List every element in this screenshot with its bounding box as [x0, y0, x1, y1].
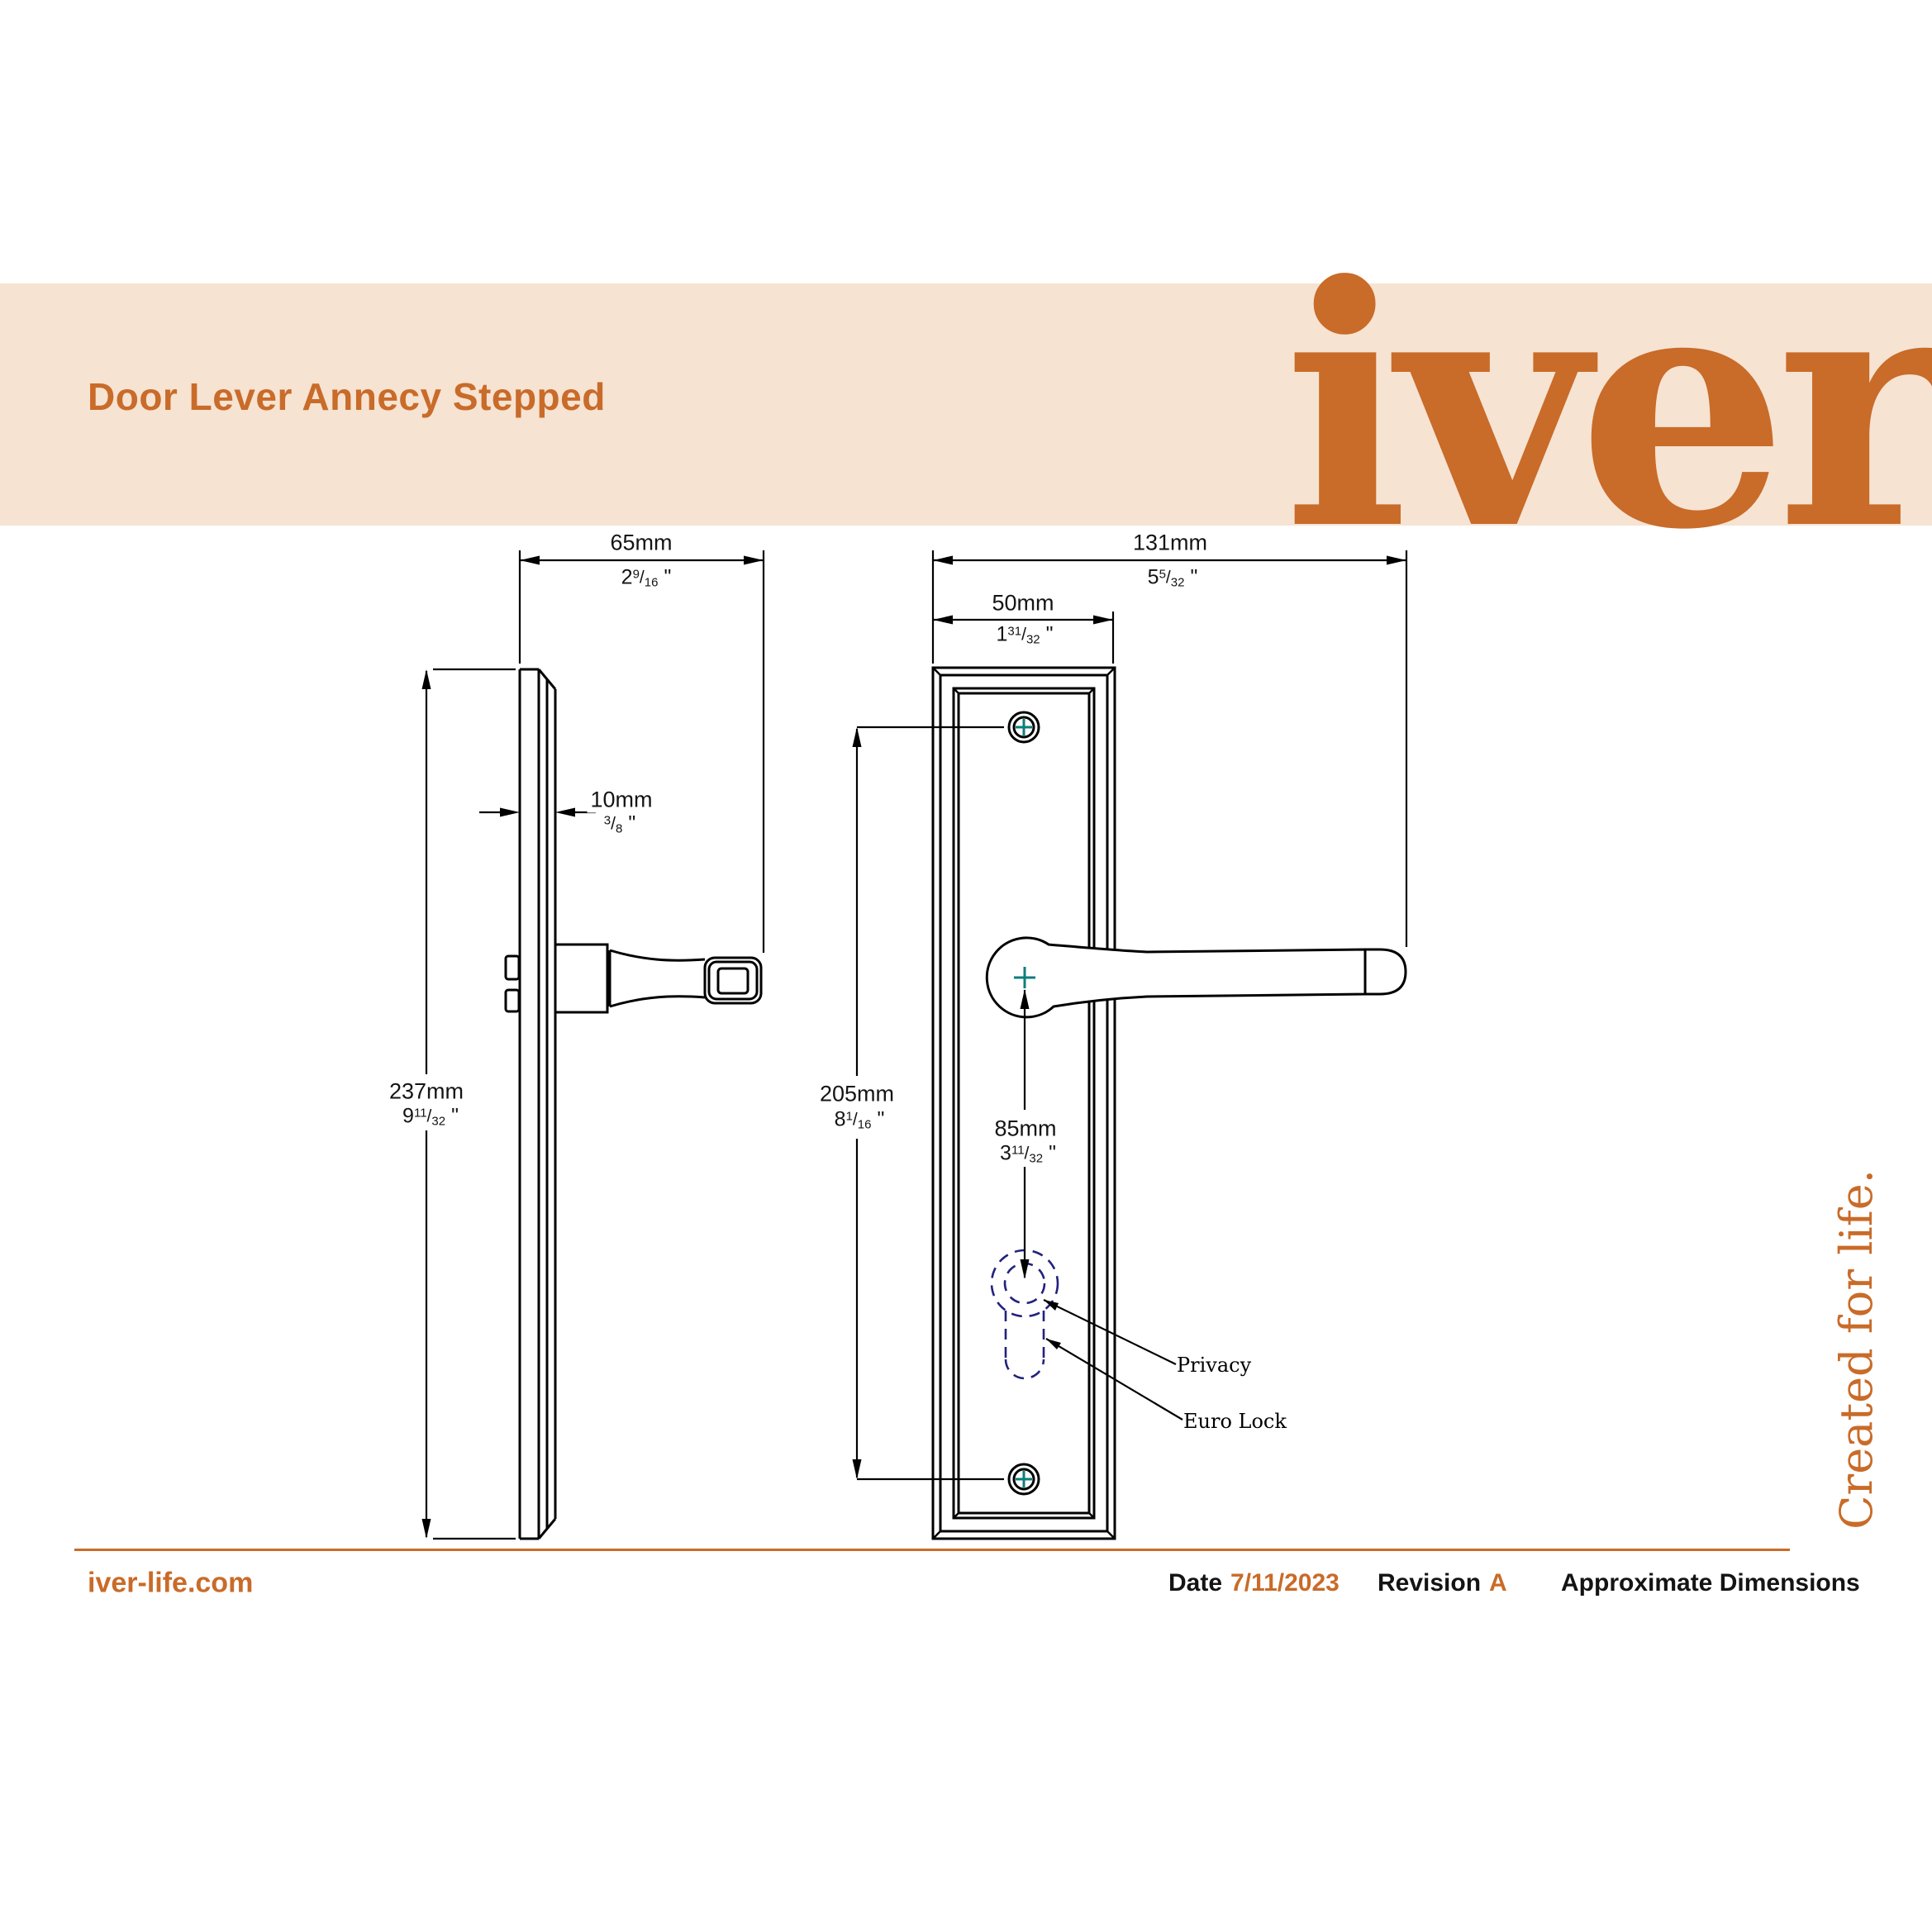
dim-projection-mm: 65mm [607, 531, 675, 556]
dim-overall-width-in: 55/32" [1144, 566, 1202, 590]
dim-thickness-mm: 10mm [587, 788, 655, 813]
footer-divider [74, 1549, 1790, 1551]
callout-leaders [1044, 1300, 1183, 1420]
revision-field: RevisionA [1378, 1569, 1507, 1597]
front-view-dimensions [853, 550, 1407, 1479]
fixing-lug-top [506, 956, 519, 979]
dim-height-mm: 237mm [386, 1079, 467, 1105]
dim-lever-cylinder-mm: 85mm [991, 1116, 1059, 1142]
dimensions-note: Approximate Dimensions [1561, 1569, 1860, 1597]
dim-fixing-centres-mm: 205mm [816, 1082, 897, 1107]
privacy-label: Privacy [1177, 1354, 1251, 1377]
dim-overall-width-mm: 131mm [1130, 531, 1211, 556]
front-view-drawing [933, 668, 1406, 1539]
revision-label: Revision [1378, 1569, 1481, 1597]
spec-sheet-page: Door Lever Annecy Stepped iver Created f… [0, 0, 1932, 1932]
lever-end-side [705, 958, 761, 1003]
date-label: Date [1168, 1569, 1222, 1597]
dim-fixing-centres-in: 81/16" [831, 1108, 888, 1132]
revision-value: A [1489, 1569, 1507, 1597]
date-value: 7/11/2023 [1230, 1569, 1340, 1597]
dim-plate-width-in: 131/32" [993, 623, 1057, 647]
side-view-dimensions [422, 550, 764, 1539]
date-field: Date7/11/2023 [1168, 1569, 1340, 1597]
euro-lock-label: Euro Lock [1183, 1410, 1287, 1433]
dim-lever-cylinder-in: 311/32" [997, 1142, 1059, 1166]
dim-projection-in: 29/16" [618, 566, 675, 590]
dim-plate-width-mm: 50mm [988, 591, 1057, 616]
fixing-lug-bottom [506, 990, 519, 1011]
lever-front [987, 938, 1365, 1017]
technical-drawing [0, 0, 1932, 1932]
dim-thickness-in: 3/8" [601, 812, 639, 836]
website-link[interactable]: iver-life.com [88, 1568, 253, 1600]
dim-height-in: 911/32" [399, 1105, 462, 1129]
lever-end-cap [1365, 949, 1406, 994]
lever-hub-side [555, 945, 607, 1012]
